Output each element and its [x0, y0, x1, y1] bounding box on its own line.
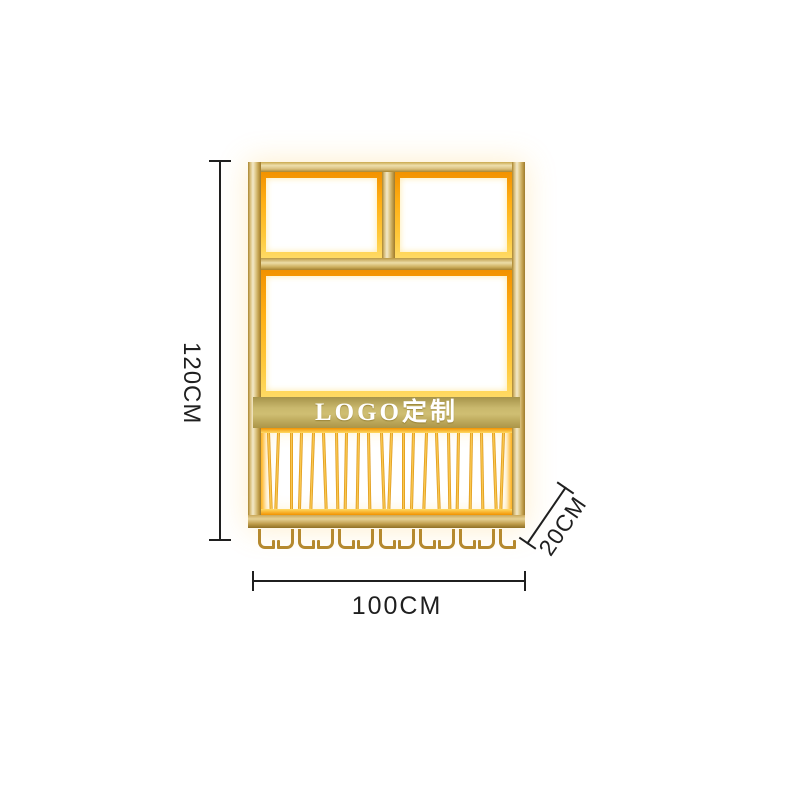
glass-rails-section: [261, 428, 512, 515]
rail-rod: [468, 433, 472, 509]
rail-rod: [387, 433, 393, 509]
rail-rod: [410, 433, 415, 509]
rack-left-bar: [248, 162, 261, 528]
stemware-hook: [338, 529, 354, 549]
dimension-tick: [252, 571, 254, 591]
rack-divider-bar: [382, 172, 395, 258]
rail-rod: [343, 433, 347, 509]
rail-rod: [447, 433, 451, 509]
rack-top-right-compartment: [395, 172, 512, 258]
stemware-hooks-row: [258, 528, 515, 554]
rail-rod: [290, 433, 293, 509]
width-dimension-line: [252, 580, 526, 582]
stemware-hook: [479, 529, 495, 549]
rack-bottom-bar: [248, 515, 525, 528]
stemware-hook: [379, 529, 395, 549]
compartment-opening: [266, 178, 377, 252]
dimension-tick: [209, 539, 231, 541]
rail-rod: [267, 433, 273, 509]
rail-rod: [274, 433, 280, 509]
stemware-hook: [298, 529, 314, 549]
banner-text: LOGO定制: [315, 400, 458, 425]
width-dimension-label: 100CM: [297, 592, 497, 621]
dimension-tick: [524, 571, 526, 591]
rack-middle-compartment: [261, 270, 512, 397]
rail-rod: [335, 433, 339, 509]
rail-rod: [402, 433, 405, 509]
rail-rod: [499, 433, 505, 509]
rack-top-left-compartment: [261, 172, 382, 258]
stemware-hook: [358, 529, 374, 549]
height-dimension-line: [219, 160, 221, 541]
rail-rod: [435, 433, 441, 509]
rack-top-bar: [248, 162, 525, 172]
stemware-hook: [258, 529, 274, 549]
rack-shelf-bar: [248, 258, 525, 270]
rail-rod: [356, 433, 360, 509]
rail-rod: [456, 433, 460, 509]
stemware-hook: [499, 529, 515, 549]
stemware-hook: [278, 529, 294, 549]
compartment-opening: [266, 276, 507, 391]
stemware-hook: [439, 529, 455, 549]
rack-right-bar: [512, 162, 525, 528]
logo-banner: LOGO定制: [253, 397, 520, 428]
wine-rack: LOGO定制: [248, 162, 525, 528]
rail-rod: [367, 433, 371, 509]
stemware-hook: [399, 529, 415, 549]
depth-dimension-label: 20CM: [528, 484, 598, 569]
stemware-hook: [318, 529, 334, 549]
stemware-hook: [419, 529, 435, 549]
depth-dimension-line: 20CM: [526, 487, 567, 545]
rail-rod: [309, 433, 315, 509]
height-dimension-label: 120CM: [177, 342, 205, 422]
dimension-tick: [209, 160, 231, 162]
rail-rod: [492, 433, 498, 509]
rail-rod: [422, 433, 428, 509]
compartment-opening: [400, 178, 507, 252]
stemware-hook: [459, 529, 475, 549]
rail-rod: [480, 433, 484, 509]
rail-rod: [380, 433, 386, 509]
product-image: LOGO定制 120CM 100CM 20CM: [0, 0, 800, 800]
rail-rod: [322, 433, 328, 509]
rail-rod: [298, 433, 303, 509]
